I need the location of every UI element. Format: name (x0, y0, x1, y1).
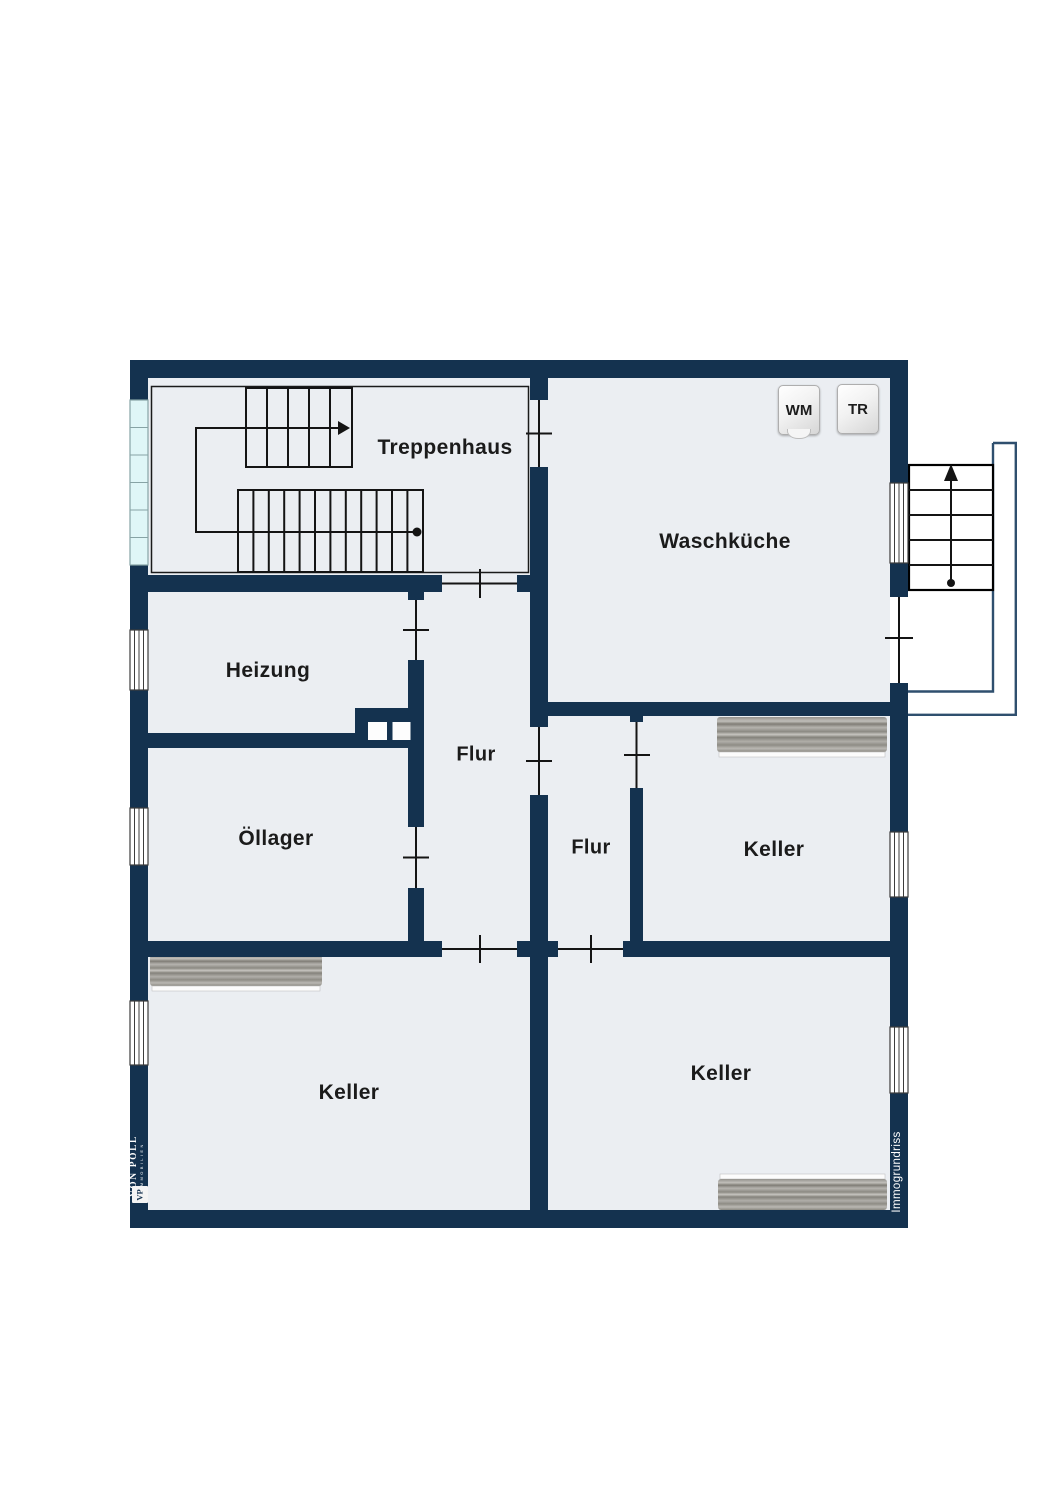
room-label-keller-mid: Keller (744, 838, 805, 862)
room-label-treppenhaus: Treppenhaus (377, 436, 512, 460)
agency-monogram: VP (135, 1189, 145, 1200)
floorplan-page: Treppenhaus Waschküche Heizung Öllager F… (0, 0, 1060, 1500)
room-label-heizung: Heizung (226, 659, 310, 683)
washing-machine-label: WM (786, 402, 813, 419)
washing-machine-icon: WM (778, 385, 820, 435)
wall-waschkueche-south (548, 702, 890, 716)
exterior-stairs-up-icon (908, 443, 1016, 715)
wall-exterior-bottom (130, 1210, 908, 1228)
room-label-keller-bottom-right: Keller (691, 1062, 752, 1086)
wall-exterior-top (130, 360, 908, 378)
agency-monogram-badge: VP (132, 1186, 148, 1203)
room-label-oellager: Öllager (238, 827, 313, 851)
room-label-flur-small: Flur (571, 837, 610, 860)
wall-keller-divider (530, 957, 548, 1210)
glass-block-band-icon (130, 400, 148, 565)
chimney-block (355, 708, 424, 748)
wall-heizung-south (130, 733, 355, 748)
watermark-text: Immogrundriss (891, 1112, 907, 1232)
floorplan-drawing (0, 0, 1060, 1500)
room-label-keller-bottom-left: Keller (319, 1081, 380, 1105)
wall-mid-south (130, 941, 908, 957)
room-label-waschkueche: Waschküche (659, 530, 791, 554)
room-label-flur-main: Flur (456, 744, 495, 767)
dryer-icon: TR (837, 384, 879, 434)
dryer-label: TR (848, 401, 868, 418)
